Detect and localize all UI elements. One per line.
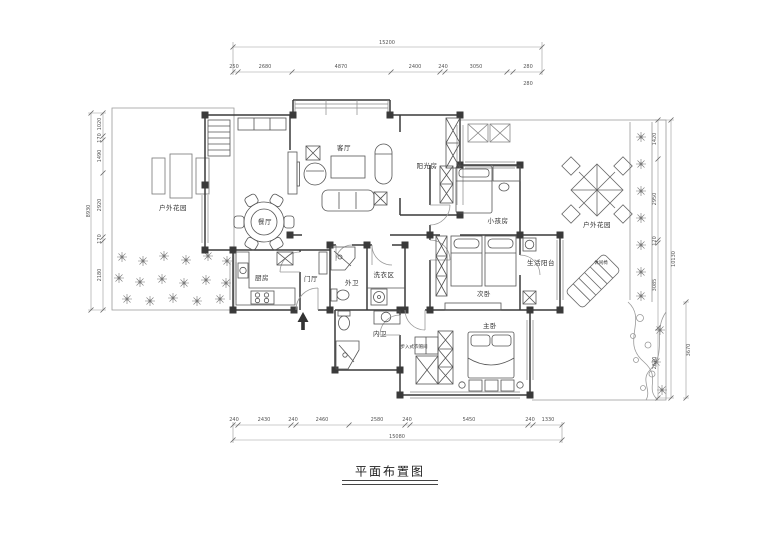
chaise [375, 144, 392, 184]
living-furniture [288, 144, 392, 211]
dim-label: 5450 [463, 417, 476, 423]
stone-path [628, 302, 666, 400]
room-label-walkin-closet: 步入式衣帽间 [401, 344, 428, 350]
dim-label: 2460 [316, 417, 329, 423]
bed [485, 236, 516, 286]
dim-label: 2180 [97, 269, 103, 282]
pillow [492, 335, 511, 346]
room-label-master-bedroom: 主卧 [483, 320, 497, 330]
tv [297, 162, 300, 186]
dim-top-total: 15200 [379, 40, 395, 46]
inner-bath-fixtures [336, 311, 400, 369]
title-rule [342, 480, 438, 481]
stove [251, 291, 274, 304]
entry-arrow [298, 312, 309, 330]
room-label-inner-bath: 内卫 [373, 328, 387, 338]
dim-label: 170 [97, 234, 103, 244]
drawing-title: 平面布置图 [355, 463, 425, 480]
sideboard [238, 118, 286, 130]
ottoman [485, 380, 498, 391]
dim-label: 1020 [97, 118, 103, 131]
bed [451, 236, 482, 286]
pillow [454, 239, 479, 248]
dim-label: 240 [288, 417, 298, 423]
title-rule [342, 484, 438, 485]
dim-label: 2580 [371, 417, 384, 423]
toilet [331, 289, 337, 301]
shoe-cabinet [319, 252, 327, 274]
dim-label: 1330 [542, 417, 555, 423]
dim-label: 1490 [97, 150, 103, 163]
room-label-dining: 餐厅 [258, 216, 272, 226]
dim-label: 2670 [652, 357, 658, 370]
dim-label: 120 [652, 236, 658, 246]
ac-platform [468, 124, 510, 142]
dim-label: 2950 [652, 193, 658, 206]
bed [456, 166, 492, 213]
room-label-living: 客厅 [337, 142, 351, 152]
toilet [338, 311, 350, 316]
parasol-table [562, 157, 632, 223]
dim-bottom-total: 15080 [389, 434, 405, 440]
room-label-second-bedroom: 次卧 [477, 288, 491, 298]
room-label-kitchen: 厨房 [255, 272, 269, 282]
room-label-service-balcony: 生活阳台 [527, 257, 555, 267]
room-label-garden-left: 户外花园 [159, 202, 187, 212]
balcony-fixtures [523, 238, 536, 304]
pillow [471, 335, 490, 346]
dim-side: 3670 [686, 344, 692, 357]
dim-label: 240 [438, 64, 448, 70]
dining-furniture [208, 118, 294, 251]
pillow [488, 239, 513, 248]
dimension-lines [88, 42, 689, 443]
lamp [517, 382, 523, 388]
foyer-furniture [319, 252, 327, 274]
dim-right-total: 10130 [671, 251, 677, 267]
garden-plants-right [636, 132, 667, 395]
lamp [459, 382, 465, 388]
bed [468, 332, 514, 378]
pillow [459, 169, 489, 177]
floorplan-canvas: 客厅 阳光房 餐厅 厨房 门厅 外卫 洗衣区 小孩房 次卧 生活阳台 主卧 内卫… [0, 0, 780, 551]
ottoman [469, 380, 482, 391]
dim-label: 280 [523, 64, 533, 70]
dim-label: 2430 [258, 417, 271, 423]
room-label-outer-bath: 外卫 [345, 277, 359, 287]
dim-label: 170 [97, 133, 103, 143]
dim-label: 2680 [259, 64, 272, 70]
kids-room-furniture [440, 166, 520, 213]
room-label-garden-right: 户外花园 [583, 219, 611, 229]
room-label-foyer: 门厅 [304, 273, 318, 283]
sofa [322, 190, 374, 211]
dim-label: 2400 [409, 64, 422, 70]
dim-label: 240 [525, 417, 535, 423]
dim-label: 250 [229, 64, 239, 70]
chair [499, 183, 509, 191]
lounge-chair [565, 253, 620, 308]
windows [202, 100, 563, 398]
master-bedroom-furniture [445, 303, 523, 391]
dresser [445, 303, 501, 310]
dimension-ticks [89, 45, 689, 443]
sunroom-furniture [446, 118, 460, 168]
dim-label: 1420 [652, 133, 658, 146]
wall-columns [202, 112, 564, 399]
garden-bench-table [152, 154, 209, 198]
garden-plants-left [114, 251, 232, 306]
label-lounge-chair: 休闲椅 [594, 260, 608, 266]
dim-label: 240 [402, 417, 412, 423]
room-label-laundry: 洗衣区 [374, 269, 395, 279]
armchair [304, 163, 326, 185]
ottoman [501, 380, 514, 391]
walkin-closet-furniture [415, 331, 453, 384]
dim-label: 4870 [335, 64, 348, 70]
wardrobe [440, 166, 453, 203]
dim-label: 3050 [470, 64, 483, 70]
dim-label: 2920 [97, 199, 103, 212]
dim-label: 280 [523, 81, 533, 87]
tv-cabinet [288, 152, 297, 194]
room-label-sunroom: 阳光房 [417, 160, 438, 170]
coffee-table [331, 156, 365, 178]
dim-left-total: 8930 [86, 205, 92, 218]
dim-label: 240 [229, 417, 239, 423]
second-bedroom-furniture [436, 236, 516, 296]
dim-label: 3085 [652, 279, 658, 292]
room-label-kids-room: 小孩房 [488, 215, 509, 225]
